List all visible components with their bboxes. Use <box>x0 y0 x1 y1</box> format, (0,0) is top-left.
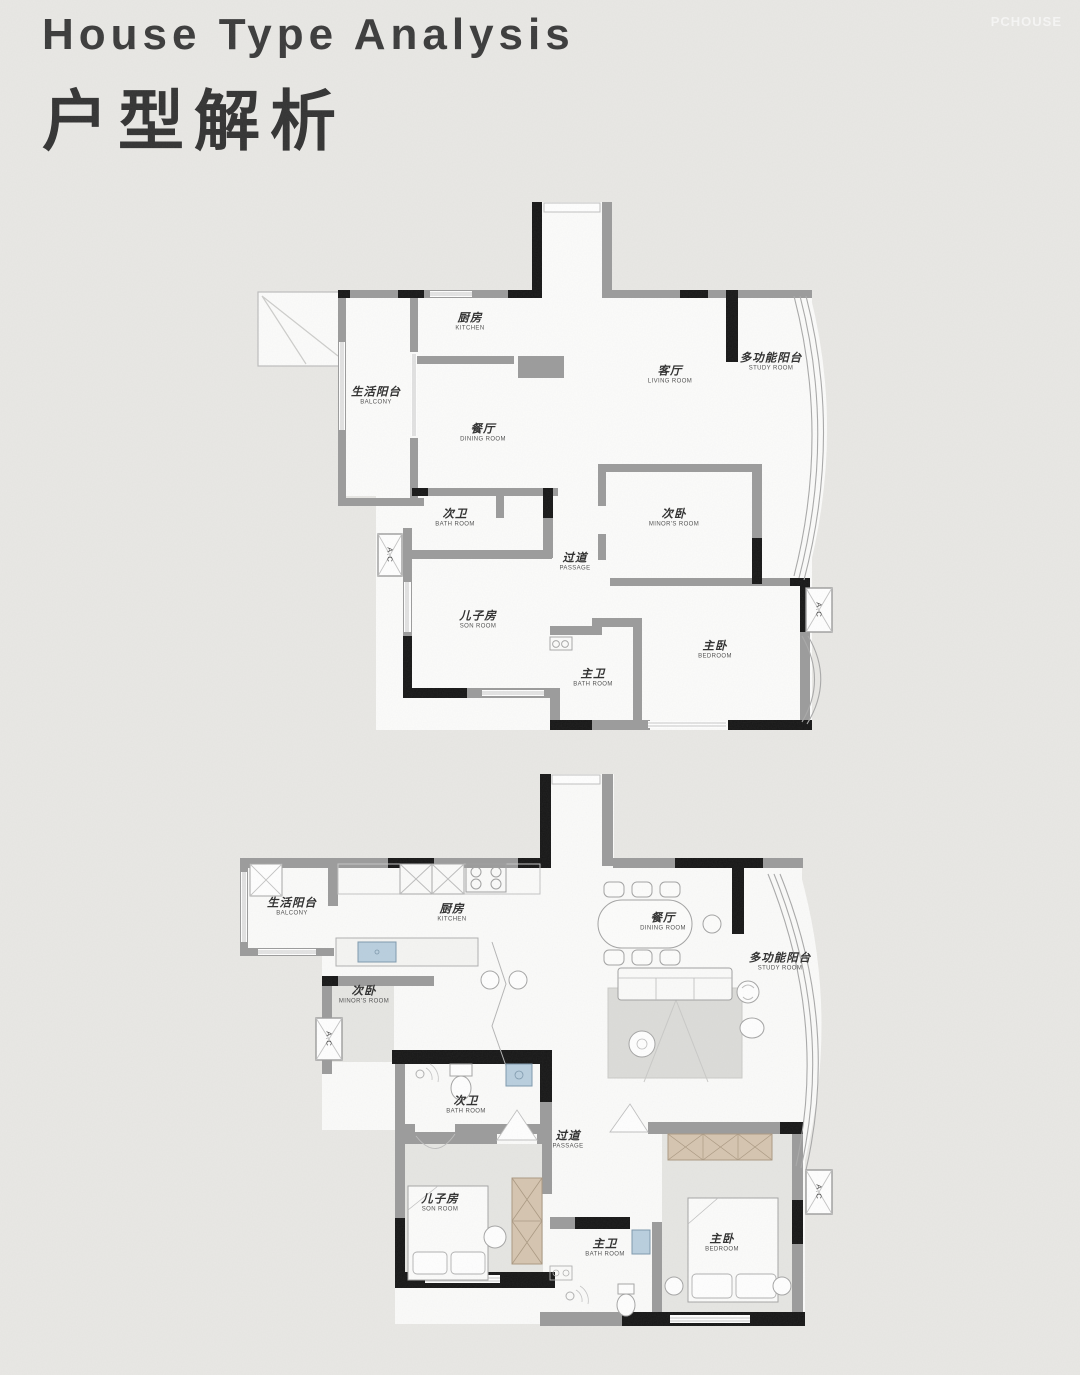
room-label-balcony-zh: 生活阳台 <box>351 386 401 398</box>
room-label-study-en: STUDY ROOM <box>740 365 803 371</box>
room-label-bedroom-zh: 主卧 <box>698 640 732 652</box>
room-label-balcony-zh: 生活阳台 <box>267 897 317 909</box>
room-label-son-zh: 儿子房 <box>459 610 497 622</box>
toilet-icon <box>617 1284 635 1316</box>
room-label-minor-en: MINOR'S ROOM <box>649 521 699 527</box>
room-label-minor: 次卧 MINOR'S ROOM <box>649 508 699 527</box>
room-label-balcony: 生活阳台 BALCONY <box>351 386 401 405</box>
room-label-minor: 次卧 MINOR'S ROOM <box>339 985 389 1004</box>
room-label-study-zh: 多功能阳台 <box>749 952 812 964</box>
room-label-kitchen: 厨房 KITCHEN <box>437 903 466 922</box>
son-stool <box>484 1226 506 1248</box>
room-label-kitchen-en: KITCHEN <box>437 916 466 922</box>
plan2-entry-door <box>552 775 600 784</box>
room-label-passage-en: PASSAGE <box>559 565 590 571</box>
sink-icon <box>506 1064 532 1086</box>
room-label-kitchen-zh: 厨房 <box>455 312 484 324</box>
room-label-dining-zh: 餐厅 <box>460 423 506 435</box>
room-label-balcony-en: BALCONY <box>351 399 401 405</box>
room-label-dining-zh: 餐厅 <box>640 912 686 924</box>
room-label-bath1-en: BATH ROOM <box>573 681 613 687</box>
bedroom-wardrobe <box>668 1134 772 1160</box>
room-label-bedroom: 主卧 BEDROOM <box>698 640 732 659</box>
room-label-study-zh: 多功能阳台 <box>740 352 803 364</box>
room-label-living: 客厅 LIVING ROOM <box>648 365 692 384</box>
furnished-floor-plan: 生活阳台 BALCONY 厨房 KITCHEN 餐厅 DINING ROOM 多… <box>240 772 845 1327</box>
room-label-passage-zh: 过道 <box>552 1130 583 1142</box>
room-label-study: 多功能阳台 STUDY ROOM <box>740 352 803 371</box>
room-label-minor-en: MINOR'S ROOM <box>339 998 389 1004</box>
room-label-bath2-zh: 次卫 <box>446 1095 486 1107</box>
room-label-balcony-en: BALCONY <box>267 910 317 916</box>
room-label-kitchen-en: KITCHEN <box>455 325 484 331</box>
room-label-bath1: 主卫 BATH ROOM <box>573 668 613 687</box>
room-label-dining: 餐厅 DINING ROOM <box>460 423 506 442</box>
room-label-balcony: 生活阳台 BALCONY <box>267 897 317 916</box>
sofa <box>618 968 732 1000</box>
ac-label-right: A.C <box>815 1184 824 1200</box>
room-label-living-zh: 客厅 <box>648 365 692 377</box>
room-label-passage: 过道 PASSAGE <box>559 552 590 571</box>
room-label-son: 儿子房 SON ROOM <box>459 610 497 629</box>
room-label-minor-zh: 次卧 <box>649 508 699 520</box>
room-label-bath2: 次卫 BATH ROOM <box>446 1095 486 1114</box>
room-label-bath1: 主卫 BATH ROOM <box>585 1238 625 1257</box>
stool-icon <box>481 971 499 989</box>
room-label-bath2-zh: 次卫 <box>435 508 475 520</box>
furnished-floor-plan-drawing <box>240 772 845 1327</box>
bedside-table <box>773 1277 791 1295</box>
room-label-dining-en: DINING ROOM <box>640 925 686 931</box>
original-floor-plan: 厨房 KITCHEN 客厅 LIVING ROOM 多功能阳台 STUDY RO… <box>250 190 850 750</box>
ac-label-right: A.C <box>815 602 824 618</box>
room-label-son: 儿子房 SON ROOM <box>421 1193 459 1212</box>
sink-icon <box>632 1230 650 1254</box>
room-label-study: 多功能阳台 STUDY ROOM <box>749 952 812 971</box>
room-label-passage-zh: 过道 <box>559 552 590 564</box>
room-label-bath2-en: BATH ROOM <box>435 521 475 527</box>
stool-icon <box>509 971 527 989</box>
room-label-passage-en: PASSAGE <box>552 1143 583 1149</box>
room-label-bath1-en: BATH ROOM <box>585 1251 625 1257</box>
room-label-bedroom: 主卧 BEDROOM <box>705 1233 739 1252</box>
room-label-living-en: LIVING ROOM <box>648 378 692 384</box>
ac-label-left: A.C <box>325 1031 334 1047</box>
bedside-stool <box>665 1277 683 1295</box>
room-label-bedroom-en: BEDROOM <box>705 1246 739 1252</box>
room-label-son-en: SON ROOM <box>421 1206 459 1212</box>
room-label-passage: 过道 PASSAGE <box>552 1130 583 1149</box>
page-header: House Type Analysis 户型解析 <box>42 10 575 164</box>
room-label-son-zh: 儿子房 <box>421 1193 459 1205</box>
room-label-son-en: SON ROOM <box>459 623 497 629</box>
room-label-kitchen-zh: 厨房 <box>437 903 466 915</box>
son-wardrobe <box>512 1178 542 1264</box>
page: House Type Analysis 户型解析 PCHOUSE <box>0 0 1080 1375</box>
sink-icon <box>358 942 396 962</box>
plan1-entry-door <box>544 203 600 212</box>
washer-icon <box>250 864 282 896</box>
room-label-bath1-zh: 主卫 <box>585 1238 625 1250</box>
room-label-study-en: STUDY ROOM <box>749 965 812 971</box>
page-title-en: House Type Analysis <box>42 10 575 60</box>
room-label-bath1-zh: 主卫 <box>573 668 613 680</box>
room-label-bedroom-en: BEDROOM <box>698 653 732 659</box>
room-label-dining: 餐厅 DINING ROOM <box>640 912 686 931</box>
room-label-bath2-en: BATH ROOM <box>446 1108 486 1114</box>
page-title-zh: 户型解析 <box>42 68 575 164</box>
room-label-minor-zh: 次卧 <box>339 985 389 997</box>
original-floor-plan-drawing <box>250 190 850 750</box>
room-label-dining-en: DINING ROOM <box>460 436 506 442</box>
room-label-bath2: 次卫 BATH ROOM <box>435 508 475 527</box>
pchouse-watermark: PCHOUSE <box>991 14 1062 29</box>
room-label-bedroom-zh: 主卧 <box>705 1233 739 1245</box>
ac-label-left: A.C <box>386 547 395 563</box>
coffee-table <box>629 1031 655 1057</box>
room-label-kitchen: 厨房 KITCHEN <box>455 312 484 331</box>
